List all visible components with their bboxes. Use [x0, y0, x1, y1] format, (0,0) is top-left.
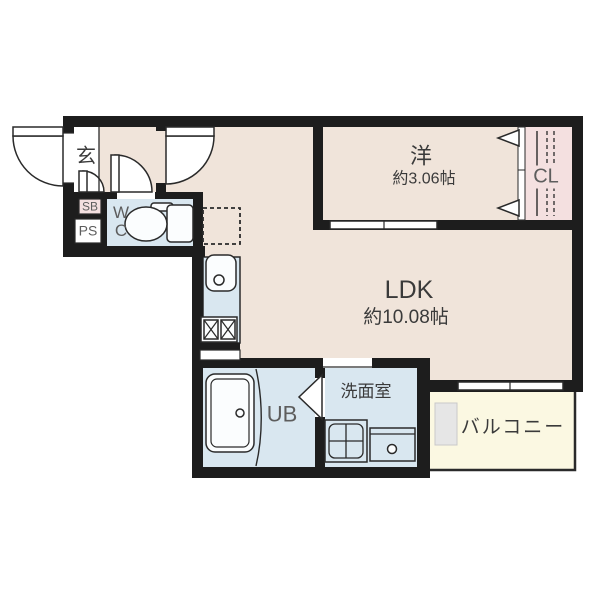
floorplan-page: 玄 SB PS W C 洋 約3.06帖 CL LDK 約10.08帖 UB 洗…: [0, 0, 600, 600]
shoe-box-label: SB: [82, 201, 98, 214]
wall-washroom-right: [417, 358, 430, 478]
wall-wc-section-bottom: [63, 246, 205, 257]
sliding-door-western: [330, 221, 437, 229]
toilet-icon: [125, 203, 193, 242]
western-room-label: 洋: [410, 144, 432, 167]
balcony-label: バルコニー: [461, 418, 566, 438]
balcony-utility-box: [435, 403, 457, 445]
ldk-size: 約10.08帖: [363, 308, 449, 328]
wc-door-gap: [117, 192, 155, 199]
wall-wc-right: [193, 192, 203, 257]
closet-label: CL: [531, 166, 561, 189]
wall-hall-stub-top: [156, 116, 166, 131]
entrance-door: [13, 127, 63, 186]
wc-label: W C: [113, 204, 129, 240]
wc-label-line1: W: [113, 204, 129, 222]
genkan-label: 玄: [76, 147, 96, 168]
gas-stove-icon: [201, 317, 237, 342]
floorplan-drawing: [0, 0, 600, 600]
ldk-label: LDK: [385, 277, 434, 303]
entrance-opening: [63, 133, 74, 183]
wc-label-line2: C: [113, 222, 129, 240]
wall-bottom: [192, 467, 430, 478]
kitchen-end-panel: [200, 350, 240, 360]
wall-western-left: [313, 116, 323, 230]
balcony-window: [458, 382, 563, 390]
unit-bath-label: UB: [267, 402, 298, 425]
wall-right: [572, 116, 583, 392]
kitchen-sink-icon: [206, 255, 236, 291]
pipe-space-label: PS: [79, 224, 98, 239]
wall-kitchen-bottom: [192, 343, 240, 350]
washroom-label: 洗面室: [341, 383, 392, 401]
western-room-size: 約3.06帖: [392, 172, 455, 189]
